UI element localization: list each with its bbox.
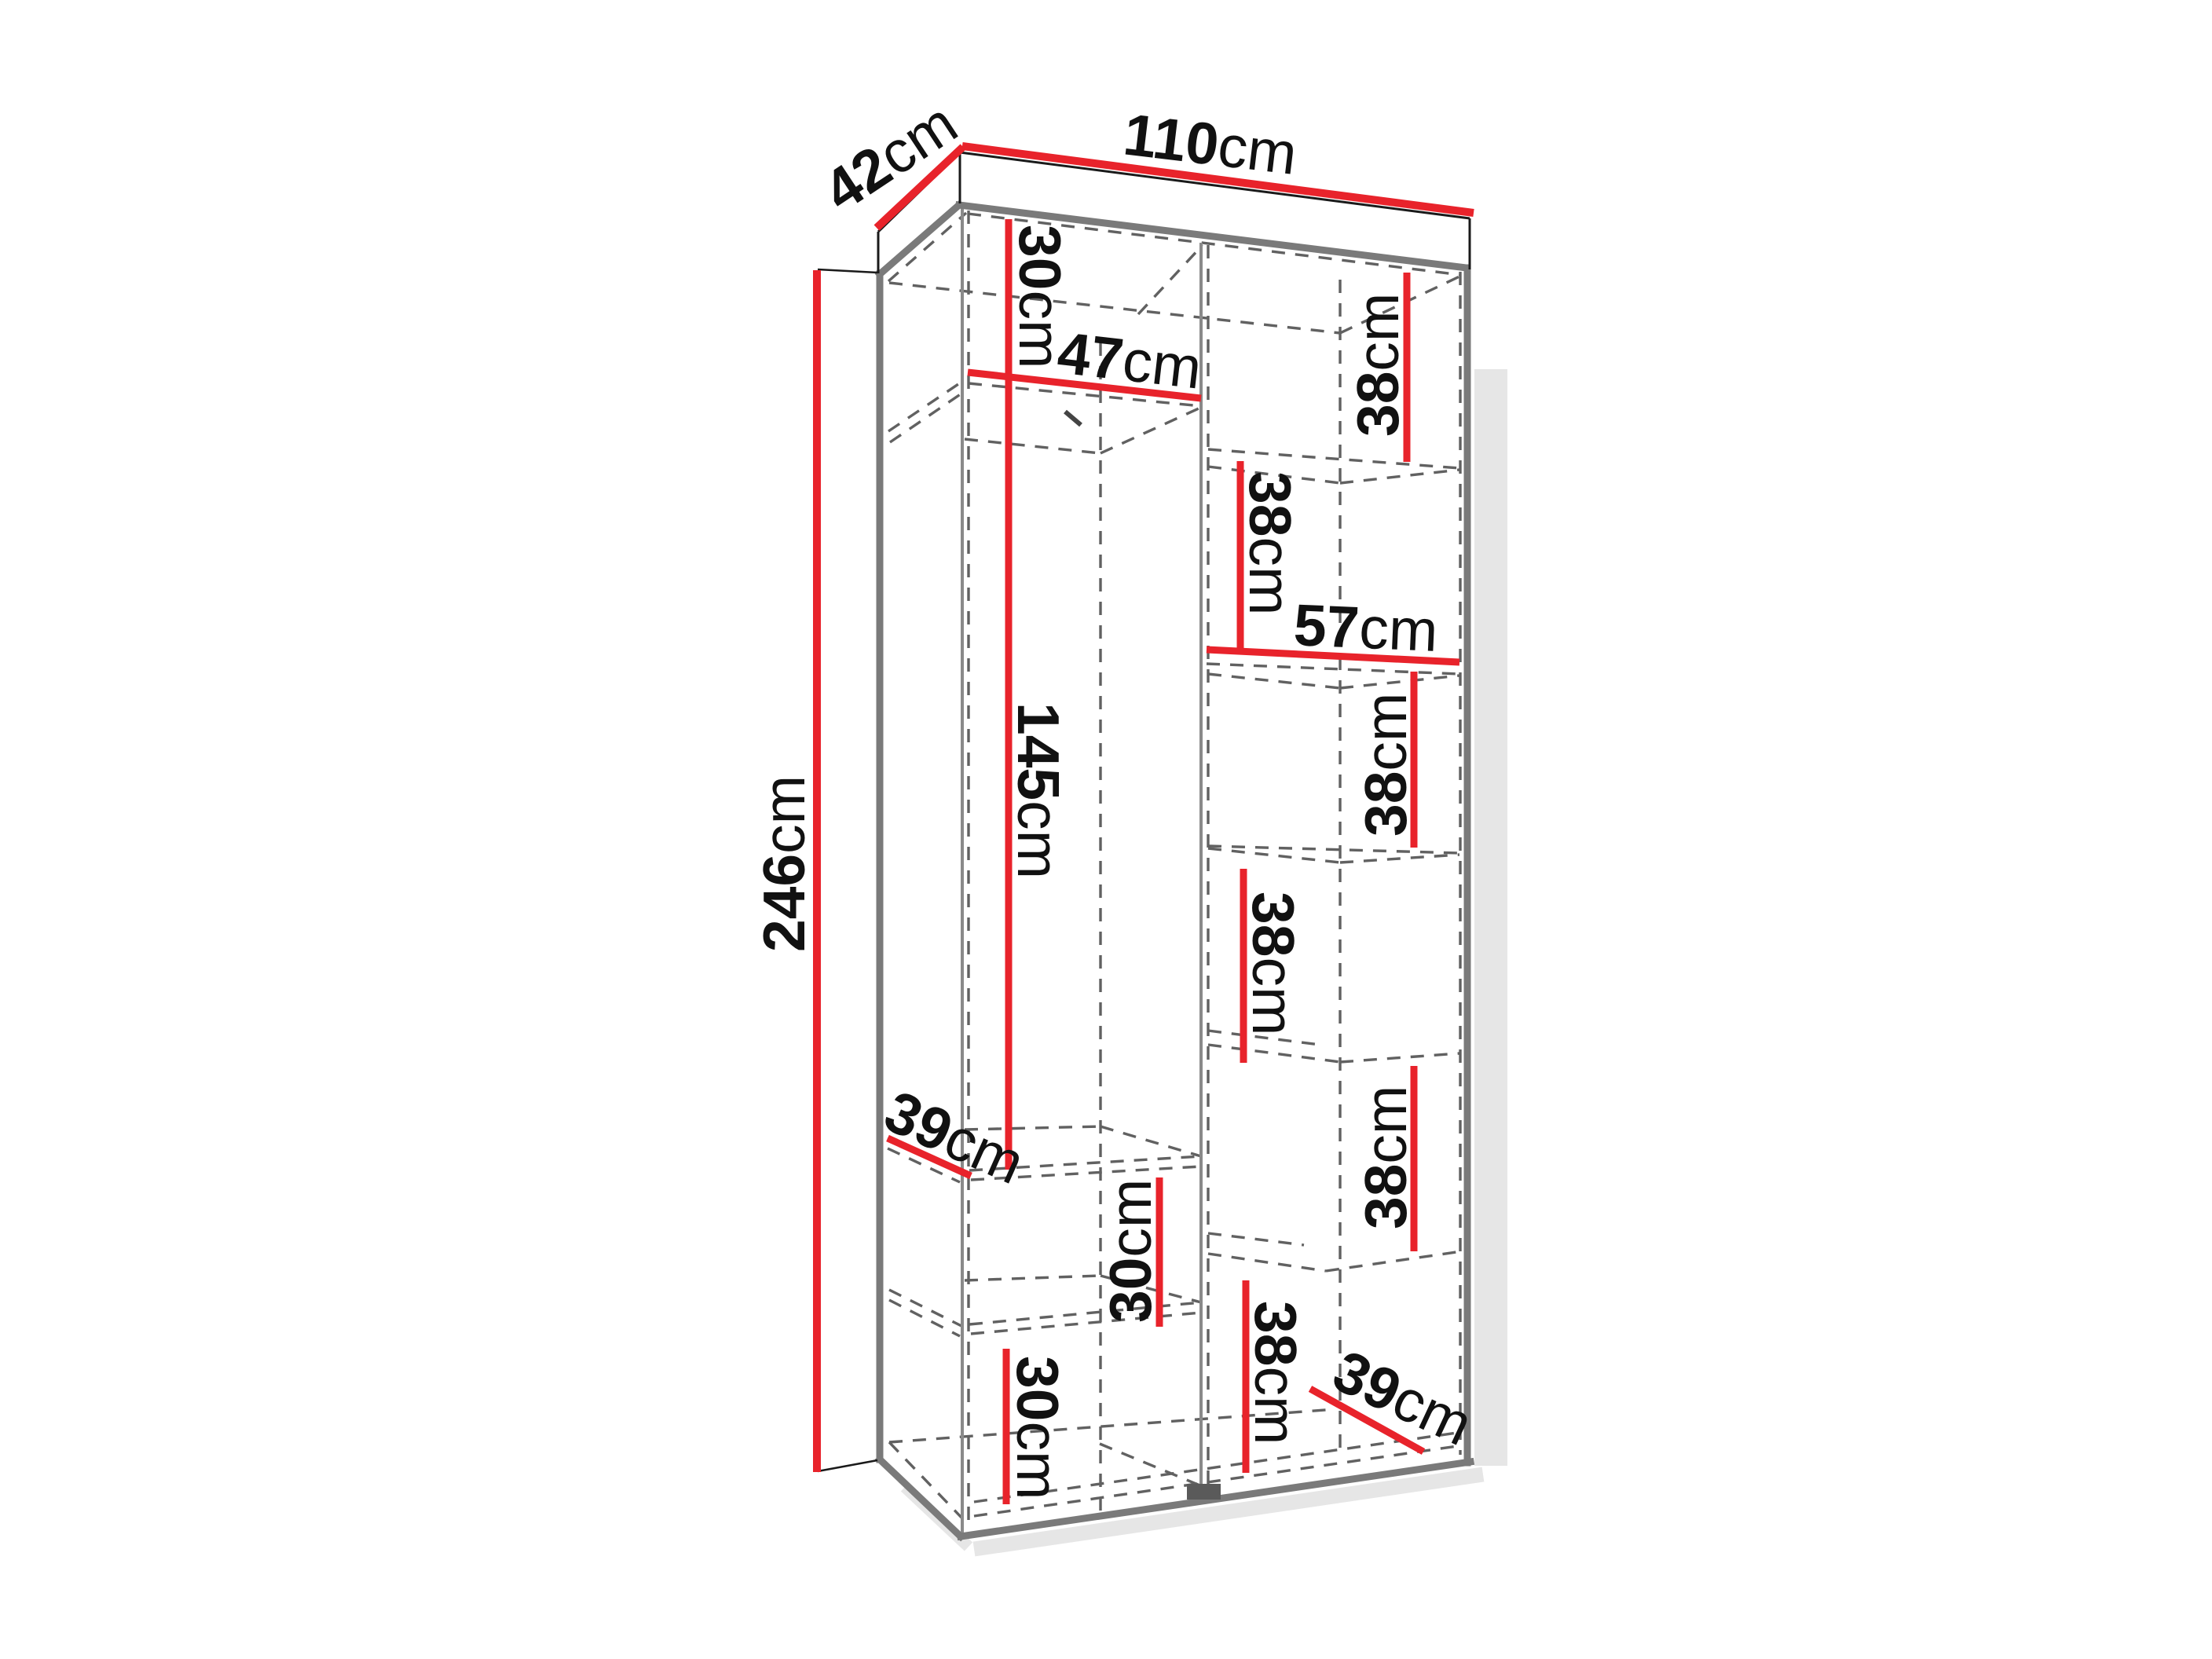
svg-text:145cm: 145cm <box>1005 702 1071 879</box>
svg-text:38cm: 38cm <box>1353 693 1419 837</box>
svg-text:57cm: 57cm <box>1292 591 1439 664</box>
svg-text:38cm: 38cm <box>1237 471 1303 615</box>
svg-text:30cm: 30cm <box>1097 1179 1163 1323</box>
svg-text:38cm: 38cm <box>1345 293 1411 437</box>
svg-text:38cm: 38cm <box>1353 1086 1419 1229</box>
svg-text:246cm: 246cm <box>751 775 817 952</box>
svg-text:38cm: 38cm <box>1243 1301 1309 1445</box>
svg-text:30cm: 30cm <box>1005 1356 1071 1500</box>
svg-text:38cm: 38cm <box>1240 892 1306 1035</box>
